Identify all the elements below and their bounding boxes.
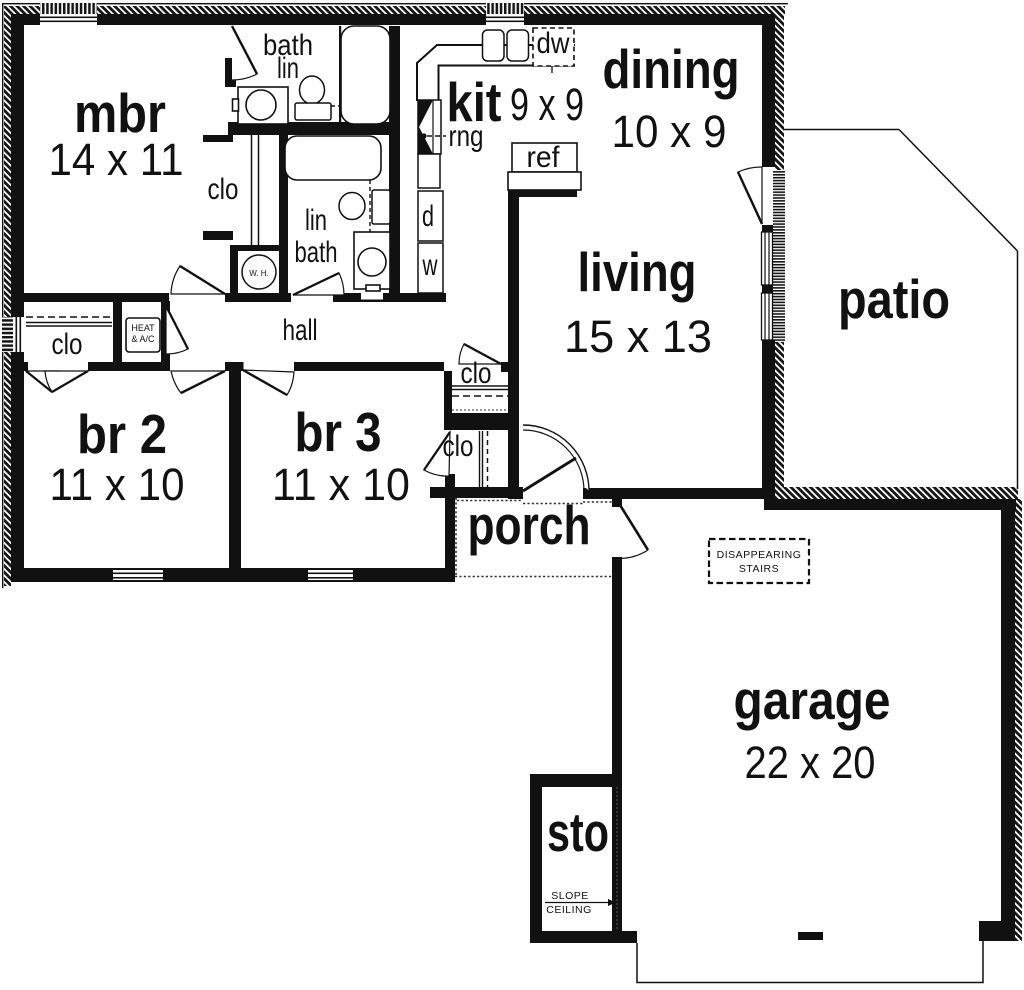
svg-text:patio: patio (838, 268, 950, 330)
svg-text:garage: garage (734, 669, 891, 731)
svg-text:lin: lin (305, 204, 327, 237)
svg-text:bath: bath (295, 236, 338, 269)
svg-text:15 x 13: 15 x 13 (564, 311, 712, 362)
svg-text:d: d (422, 200, 434, 233)
svg-text:HEAT: HEAT (131, 323, 155, 333)
svg-text:9 x 9: 9 x 9 (510, 79, 584, 130)
svg-text:w: w (422, 249, 438, 282)
svg-text:living: living (578, 241, 697, 303)
svg-text:SLOPE: SLOPE (551, 890, 589, 902)
svg-text:10 x 9: 10 x 9 (612, 106, 727, 157)
svg-text:11 x 10: 11 x 10 (272, 459, 410, 510)
svg-text:& A/C: & A/C (131, 334, 155, 344)
svg-text:sto: sto (547, 801, 609, 863)
svg-text:ref: ref (527, 141, 561, 174)
svg-text:DISAPPEARING: DISAPPEARING (717, 549, 802, 561)
svg-text:rng: rng (449, 120, 484, 153)
svg-text:STAIRS: STAIRS (739, 563, 779, 575)
svg-text:clo: clo (443, 430, 474, 463)
svg-text:clo: clo (461, 357, 492, 390)
svg-text:br 2: br 2 (77, 403, 167, 465)
svg-text:22 x 20: 22 x 20 (745, 737, 876, 788)
svg-text:CEILING: CEILING (546, 904, 592, 916)
svg-text:W. H.: W. H. (249, 269, 269, 278)
svg-text:14 x 11: 14 x 11 (49, 134, 184, 185)
svg-text:br 3: br 3 (295, 401, 382, 463)
svg-text:11 x 10: 11 x 10 (50, 459, 185, 510)
svg-text:clo: clo (52, 328, 83, 361)
svg-text:clo: clo (208, 173, 239, 206)
svg-text:hall: hall (283, 314, 318, 347)
svg-text:lin: lin (277, 52, 299, 85)
svg-text:dining: dining (603, 38, 740, 100)
svg-text:porch: porch (468, 494, 591, 556)
svg-text:dw: dw (537, 27, 570, 60)
